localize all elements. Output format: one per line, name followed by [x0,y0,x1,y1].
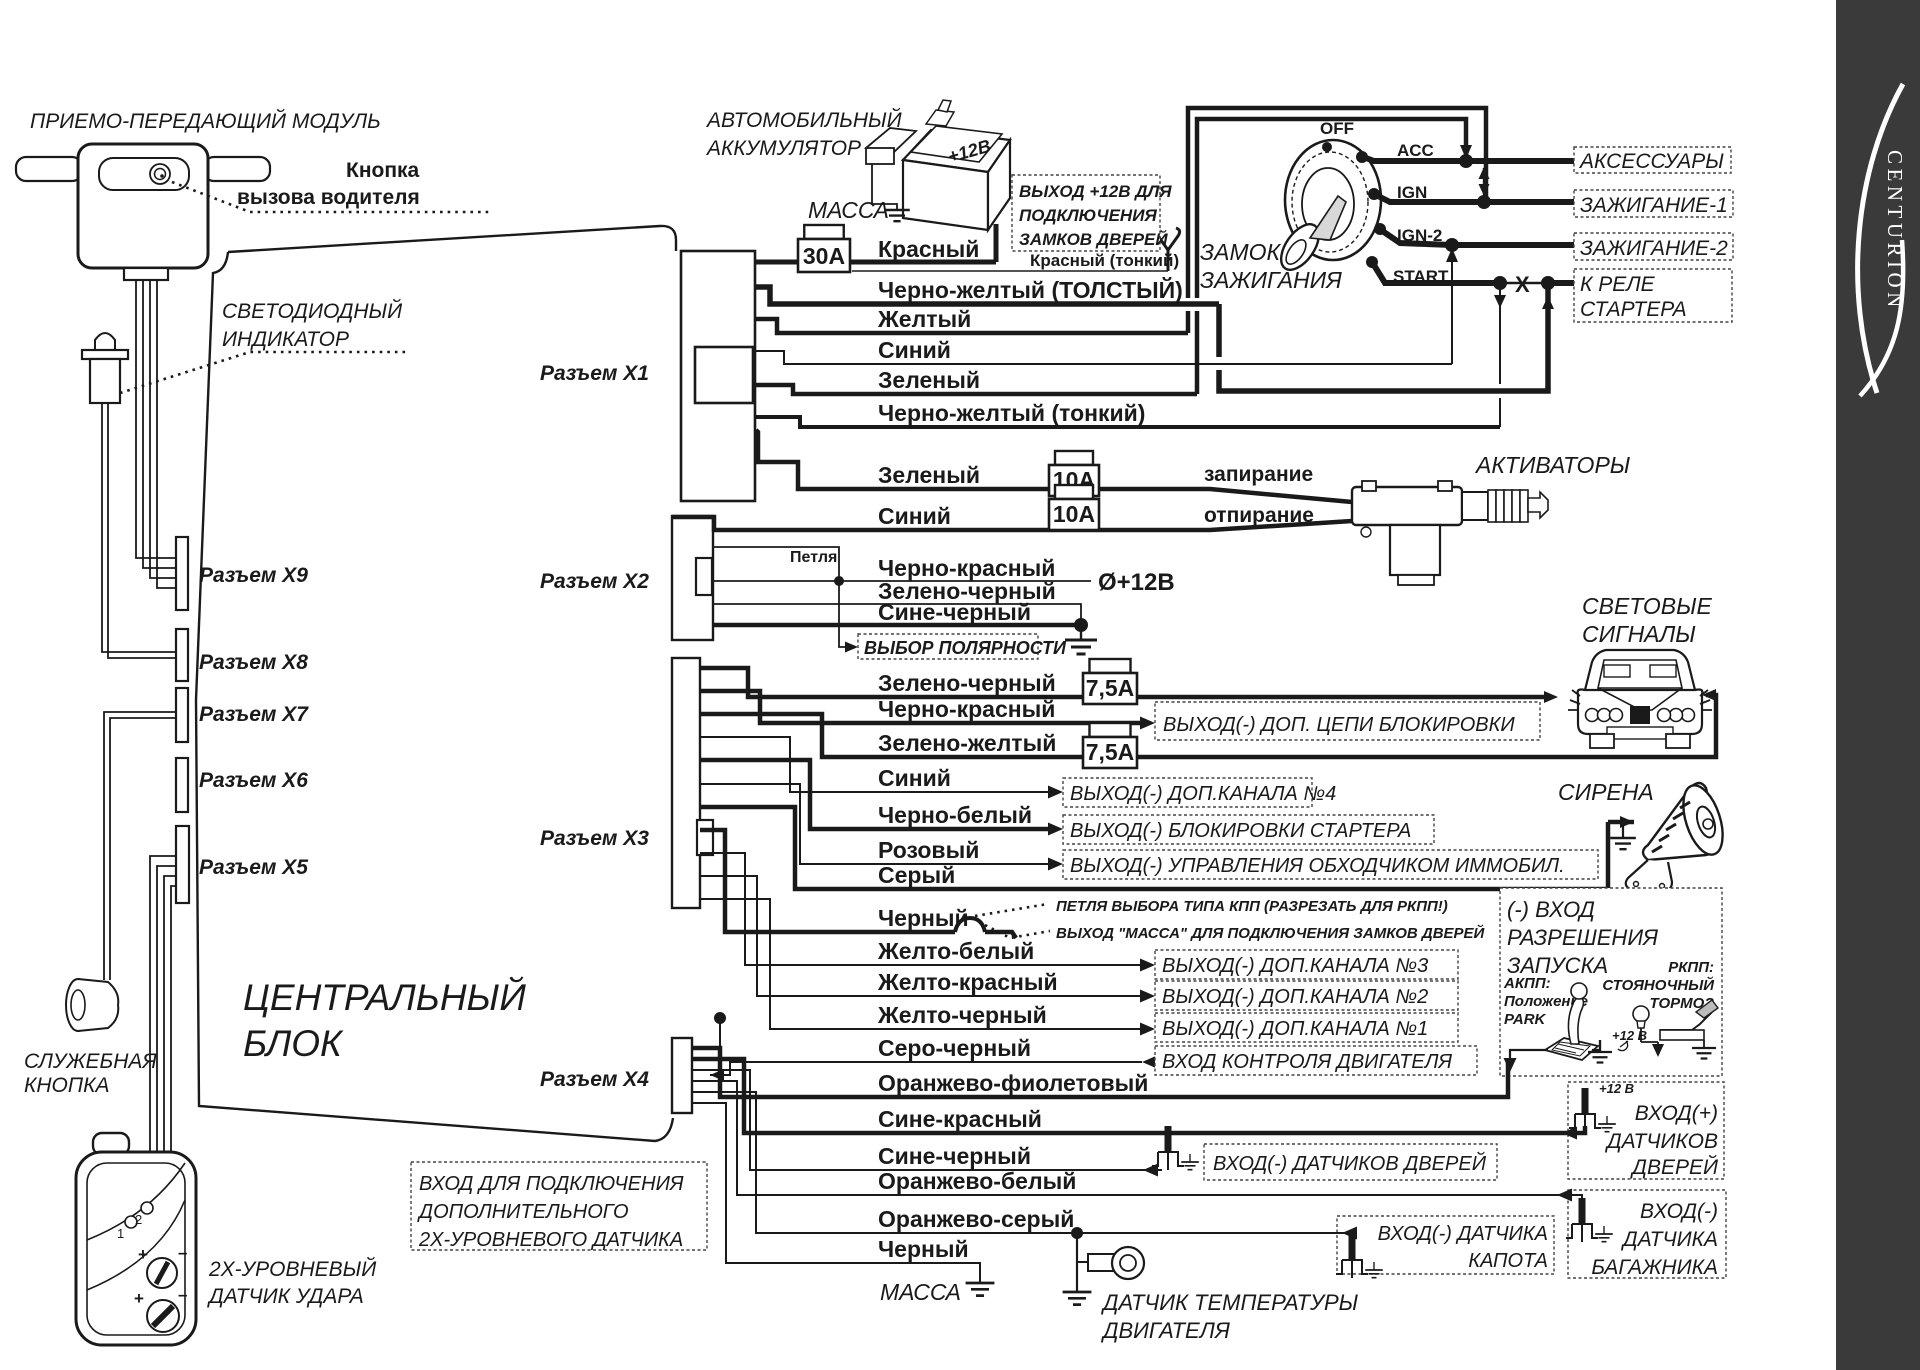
svg-text:МАССА: МАССА [808,197,889,223]
svg-text:Желтый: Желтый [877,306,971,332]
svg-text:ЗАЖИГАНИЕ-1: ЗАЖИГАНИЕ-1 [1580,194,1728,217]
svg-text:Синий: Синий [878,337,951,363]
svg-text:АКТИВАТОРЫ: АКТИВАТОРЫ [1474,452,1631,478]
svg-text:–: – [178,1285,187,1304]
svg-text:ACC: ACC [1397,141,1434,160]
svg-text:Синий: Синий [878,503,951,529]
svg-text:Кнопка: Кнопка [346,159,420,182]
svg-text:ВХОД КОНТРОЛЯ ДВИГАТЕЛЯ: ВХОД КОНТРОЛЯ ДВИГАТЕЛЯ [1162,1051,1452,1073]
svg-text:X: X [1515,272,1530,297]
svg-text:Оранжево-белый: Оранжево-белый [878,1168,1076,1194]
svg-text:2Х-УРОВНЕВЫЙ: 2Х-УРОВНЕВЫЙ [208,1258,377,1281]
svg-text:ВХОД(+): ВХОД(+) [1635,1102,1718,1125]
svg-text:Синий: Синий [878,765,951,791]
svg-text:1: 1 [117,1226,124,1241]
svg-text:10А: 10А [1053,501,1095,527]
svg-text:Разъем X5: Разъем X5 [199,856,308,879]
svg-text:ЗАМКОВ ДВЕРЕЙ: ЗАМКОВ ДВЕРЕЙ [1019,229,1168,249]
svg-text:СТОЯНОЧНЫЙ: СТОЯНОЧНЫЙ [1602,976,1715,994]
svg-text:Черно-желтый (ТОЛСТЫЙ): Черно-желтый (ТОЛСТЫЙ) [878,276,1183,303]
svg-text:Розовый: Розовый [878,837,979,863]
svg-text:СВЕТОВЫЕ: СВЕТОВЫЕ [1582,593,1712,619]
svg-text:Серо-черный: Серо-черный [878,1035,1031,1061]
svg-text:АКПП:: АКПП: [1503,975,1551,992]
svg-text:ДАТЧИК УДАРА: ДАТЧИК УДАРА [207,1285,364,1308]
svg-text:ЗАЖИГАНИЕ-2: ЗАЖИГАНИЕ-2 [1580,237,1728,260]
svg-text:Зеленый: Зеленый [878,462,980,488]
svg-text:ВХОД(-) ДАТЧИКОВ ДВЕРЕЙ: ВХОД(-) ДАТЧИКОВ ДВЕРЕЙ [1213,1152,1487,1175]
svg-text:Разъем X8: Разъем X8 [199,651,308,674]
svg-text:СТАРТЕРА: СТАРТЕРА [1580,298,1687,321]
svg-text:Красный: Красный [878,236,979,262]
svg-text:Черно-желтый (тонкий): Черно-желтый (тонкий) [878,400,1145,426]
svg-text:Разъем X2: Разъем X2 [540,570,649,593]
svg-text:Сине-черный: Сине-черный [878,599,1031,625]
svg-text:ВЫХОД(-) БЛОКИРОВКИ СТАРТЕРА: ВЫХОД(-) БЛОКИРОВКИ СТАРТЕРА [1070,820,1411,842]
svg-text:Черный: Черный [878,905,969,931]
svg-text:Черно-красный: Черно-красный [878,696,1055,722]
svg-text:АККУМУЛЯТОР: АККУМУЛЯТОР [705,137,861,160]
svg-text:Зелено-желтый: Зелено-желтый [878,730,1056,756]
svg-text:ЗАМОК: ЗАМОК [1200,239,1282,265]
svg-text:БАГАЖНИКА: БАГАЖНИКА [1591,1256,1718,1279]
svg-text:(-) ВХОД: (-) ВХОД [1507,897,1595,922]
svg-text:+: + [134,1289,144,1308]
svg-text:АВТОМОБИЛЬНЫЙ: АВТОМОБИЛЬНЫЙ [705,109,903,132]
svg-text:2Х-УРОВНЕВОГО ДАТЧИКА: 2Х-УРОВНЕВОГО ДАТЧИКА [418,1229,683,1251]
svg-text:Разъем X3: Разъем X3 [540,827,649,850]
svg-text:Красный (тонкий): Красный (тонкий) [1030,251,1179,270]
svg-text:CENTURION: CENTURION [1883,150,1907,312]
svg-text:КНОПКА: КНОПКА [24,1074,109,1097]
svg-text:Желто-черный: Желто-черный [877,1002,1047,1028]
svg-text:СИГНАЛЫ: СИГНАЛЫ [1582,621,1696,647]
svg-text:ДАТЧИКА: ДАТЧИКА [1621,1228,1718,1251]
svg-text:30A: 30A [803,243,845,269]
svg-text:ВХОД ДЛЯ ПОДКЛЮЧЕНИЯ: ВХОД ДЛЯ ПОДКЛЮЧЕНИЯ [419,1173,684,1195]
svg-text:ДАТЧИК ТЕМПЕРАТУРЫ: ДАТЧИК ТЕМПЕРАТУРЫ [1100,1290,1359,1315]
svg-text:ВЫБОР ПОЛЯРНОСТИ: ВЫБОР ПОЛЯРНОСТИ [864,638,1067,658]
svg-text:Сине-черный: Сине-черный [878,1143,1031,1169]
svg-text:ДОПОЛНИТЕЛЬНОГО: ДОПОЛНИТЕЛЬНОГО [417,1201,629,1223]
svg-text:ВХОД(-): ВХОД(-) [1640,1200,1718,1223]
svg-text:АКСЕССУАРЫ: АКСЕССУАРЫ [1578,150,1724,173]
svg-text:Желто-красный: Желто-красный [877,969,1058,995]
svg-text:ВЫХОД(-) ДОП. ЦЕПИ БЛОКИРОВКИ: ВЫХОД(-) ДОП. ЦЕПИ БЛОКИРОВКИ [1163,714,1515,736]
svg-text:ДВИГАТЕЛЯ: ДВИГАТЕЛЯ [1100,1318,1231,1343]
svg-text:+12 В: +12 В [1599,1081,1634,1096]
svg-text:Разъем X1: Разъем X1 [540,362,649,385]
svg-text:Ø+12В: Ø+12В [1098,569,1175,596]
svg-text:7,5А: 7,5А [1086,739,1135,765]
svg-text:Сине-красный: Сине-красный [878,1106,1042,1132]
svg-text:запирание: запирание [1204,463,1313,486]
svg-text:PARK: PARK [1504,1011,1547,1028]
svg-text:Оранжево-фиолетовый: Оранжево-фиолетовый [878,1070,1148,1096]
svg-text:–: – [178,1243,187,1262]
svg-text:ПЕТЛЯ ВЫБОРА ТИПА КПП (РАЗРЕЗА: ПЕТЛЯ ВЫБОРА ТИПА КПП (РАЗРЕЗАТЬ ДЛЯ РКП… [1056,898,1448,915]
svg-text:+12 В: +12 В [1612,1028,1647,1043]
svg-text:Зелено-черный: Зелено-черный [878,670,1056,696]
svg-text:7,5А: 7,5А [1086,675,1135,701]
svg-text:Желто-белый: Желто-белый [877,938,1034,964]
svg-text:Разъем X4: Разъем X4 [540,1068,649,1091]
svg-text:ВЫХОД(-) УПРАВЛЕНИЯ ОБХОДЧИКОМ: ВЫХОД(-) УПРАВЛЕНИЯ ОБХОДЧИКОМ ИММОБИЛ. [1070,855,1565,877]
svg-text:Разъем X9: Разъем X9 [199,564,308,587]
svg-text:Разъем X6: Разъем X6 [199,769,308,792]
svg-text:ИНДИКАТОР: ИНДИКАТОР [222,328,349,351]
svg-text:ВХОД(-) ДАТЧИКА: ВХОД(-) ДАТЧИКА [1378,1223,1548,1245]
svg-text:ЦЕНТРАЛЬНЫЙ: ЦЕНТРАЛЬНЫЙ [243,976,526,1018]
svg-text:2: 2 [135,1212,142,1227]
svg-text:Петля: Петля [790,549,837,566]
svg-text:вызова водителя: вызова водителя [237,186,420,209]
svg-text:Черно-белый: Черно-белый [878,802,1032,828]
svg-text:РКПП:: РКПП: [1668,959,1714,976]
svg-text:ВЫХОД +12В ДЛЯ: ВЫХОД +12В ДЛЯ [1019,182,1172,201]
svg-text:отпирание: отпирание [1204,504,1314,527]
svg-text:ДВЕРЕЙ: ДВЕРЕЙ [1630,1156,1719,1179]
svg-text:ВЫХОД(-) ДОП.КАНАЛА №3: ВЫХОД(-) ДОП.КАНАЛА №3 [1162,955,1428,977]
svg-text:СВЕТОДИОДНЫЙ: СВЕТОДИОДНЫЙ [222,300,403,323]
svg-text:РАЗРЕШЕНИЯ: РАЗРЕШЕНИЯ [1507,925,1659,950]
svg-text:Зеленый: Зеленый [878,367,980,393]
svg-text:БЛОК: БЛОК [243,1023,344,1064]
svg-text:OFF: OFF [1320,119,1354,138]
svg-text:ВЫХОД(-) ДОП.КАНАЛА №4: ВЫХОД(-) ДОП.КАНАЛА №4 [1070,783,1336,805]
svg-text:+: + [138,1245,148,1264]
svg-text:МАССА: МАССА [880,1279,961,1305]
svg-text:ВЫХОД(-) ДОП.КАНАЛА №2: ВЫХОД(-) ДОП.КАНАЛА №2 [1162,986,1428,1008]
svg-text:ПРИЕМО-ПЕРЕДАЮЩИЙ МОДУЛЬ: ПРИЕМО-ПЕРЕДАЮЩИЙ МОДУЛЬ [30,110,381,133]
svg-text:ВЫХОД(-) ДОП.КАНАЛА №1: ВЫХОД(-) ДОП.КАНАЛА №1 [1162,1018,1428,1040]
svg-text:КАПОТА: КАПОТА [1468,1250,1548,1272]
svg-text:ЗАЖИГАНИЯ: ЗАЖИГАНИЯ [1200,267,1342,293]
svg-text:ВЫХОД "МАССА" ДЛЯ ПОДКЛЮЧЕНИЯ: ВЫХОД "МАССА" ДЛЯ ПОДКЛЮЧЕНИЯ ЗАМКОВ ДВЕ… [1056,924,1486,942]
svg-text:Оранжево-серый: Оранжево-серый [878,1206,1074,1232]
svg-text:ДАТЧИКОВ: ДАТЧИКОВ [1605,1130,1718,1153]
svg-text:Серый: Серый [878,862,955,888]
svg-text:ПОДКЛЮЧЕНИЯ: ПОДКЛЮЧЕНИЯ [1019,206,1157,225]
svg-text:Черный: Черный [878,1236,969,1262]
svg-text:СЛУЖЕБНАЯ: СЛУЖЕБНАЯ [24,1050,157,1073]
svg-text:К РЕЛЕ: К РЕЛЕ [1580,273,1656,296]
svg-text:СИРЕНА: СИРЕНА [1558,779,1654,805]
svg-text:Разъем X7: Разъем X7 [199,703,309,726]
